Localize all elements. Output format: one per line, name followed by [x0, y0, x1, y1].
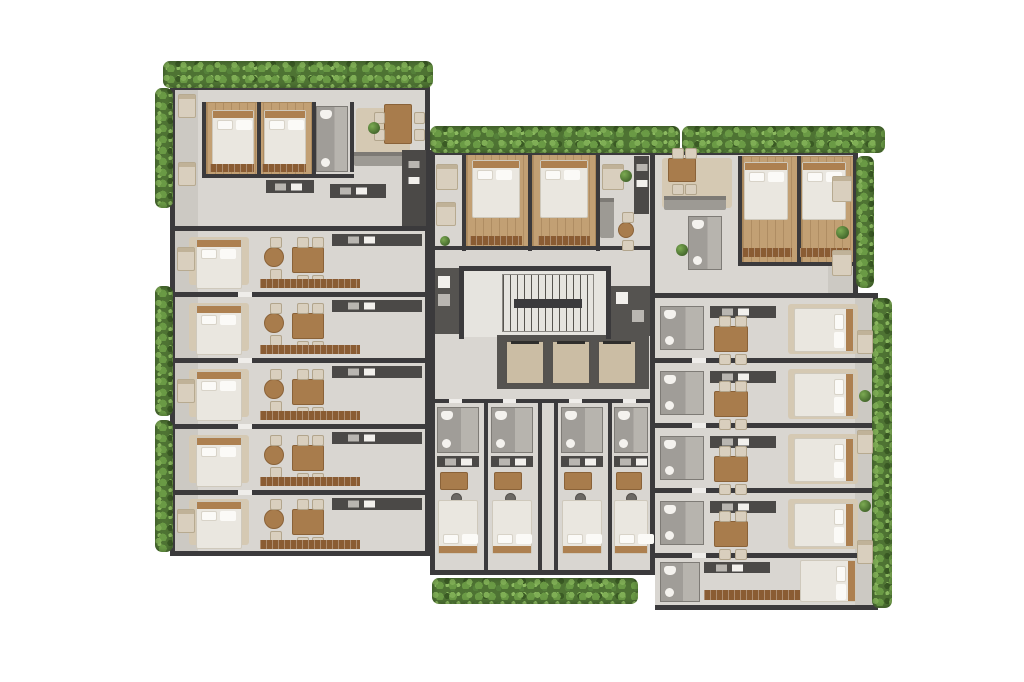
dining-table — [292, 247, 324, 273]
elevator-1 — [505, 340, 545, 385]
bathroom — [660, 562, 700, 602]
bathroom — [437, 407, 479, 453]
bathroom — [491, 407, 533, 453]
sofa — [664, 196, 726, 210]
lounge-chair — [177, 509, 195, 533]
wardrobe — [742, 248, 792, 257]
kitchen-counter — [332, 366, 422, 378]
bed — [438, 500, 478, 554]
door-gap — [692, 358, 706, 363]
bed — [264, 110, 306, 166]
washer — [438, 276, 450, 288]
wall — [462, 153, 466, 251]
bathroom — [614, 407, 648, 453]
bed — [540, 160, 588, 218]
kitchen-counter — [614, 456, 648, 467]
wardrobe — [470, 236, 522, 245]
dining-table — [714, 521, 748, 547]
bathroom — [660, 306, 704, 350]
wall — [430, 150, 435, 575]
desk — [440, 472, 468, 490]
kitchen-island — [330, 184, 386, 198]
wall — [484, 403, 488, 570]
hedge-top-center — [430, 126, 680, 153]
wardrobe — [704, 590, 804, 600]
bathroom — [660, 371, 704, 415]
bed — [196, 437, 242, 487]
hedge-left-upper — [155, 88, 173, 208]
stair-landing — [514, 299, 582, 308]
wall — [538, 403, 542, 570]
wall — [202, 174, 354, 178]
wall — [655, 553, 873, 558]
dining-table — [384, 104, 412, 144]
hedge-right-upper — [856, 156, 874, 288]
door-gap — [692, 488, 706, 493]
side-table — [264, 445, 284, 465]
lounge-chair — [832, 176, 852, 202]
door-gap — [569, 399, 582, 403]
dining-table — [292, 313, 324, 339]
bed — [196, 501, 242, 549]
side-table — [264, 379, 284, 399]
hedge-right-lower — [872, 298, 892, 608]
side-table — [264, 509, 284, 529]
wall — [655, 488, 873, 493]
wall — [202, 102, 206, 176]
bed — [794, 308, 854, 352]
wardrobe — [260, 279, 360, 288]
bathroom — [660, 436, 704, 480]
bed — [492, 500, 532, 554]
washer — [632, 310, 644, 322]
wall — [432, 399, 653, 403]
plant — [676, 244, 688, 256]
wall — [655, 423, 873, 428]
bed — [794, 503, 854, 547]
plant — [859, 500, 871, 512]
door-gap — [692, 553, 706, 558]
wardrobe — [260, 540, 360, 549]
bed — [744, 162, 788, 220]
wardrobe — [260, 411, 360, 420]
desk — [616, 472, 642, 490]
bed — [212, 110, 254, 166]
wardrobe — [260, 477, 360, 486]
plant — [836, 226, 849, 239]
bed — [196, 371, 242, 421]
side-table — [264, 247, 284, 267]
washer — [438, 294, 450, 306]
door-gap — [503, 399, 516, 403]
bathroom — [561, 407, 603, 453]
door-gap — [238, 424, 252, 429]
wall — [257, 102, 261, 176]
wall — [606, 266, 611, 339]
wardrobe — [210, 164, 254, 172]
kitchen-counter — [634, 156, 649, 214]
dining-table — [292, 445, 324, 471]
kitchen-counter — [561, 456, 603, 467]
dining-table — [714, 326, 748, 352]
lounge-chair — [857, 430, 873, 454]
desk — [494, 472, 522, 490]
kitchen-counter — [437, 456, 479, 467]
dining-table — [292, 509, 324, 535]
dining-table — [668, 158, 696, 182]
wardrobe — [538, 236, 590, 245]
lounge-chair — [832, 250, 852, 276]
bed — [794, 438, 854, 482]
elevator-3 — [597, 340, 637, 385]
bed — [800, 560, 856, 602]
door-gap — [623, 399, 636, 403]
elevator-2 — [551, 340, 591, 385]
bathroom — [688, 216, 722, 270]
hedge-left-lower — [155, 420, 173, 552]
hedge-bottom-center — [432, 578, 638, 604]
kitchen-counter — [266, 180, 314, 193]
lounge-chair — [436, 202, 456, 226]
plant — [859, 390, 871, 402]
plant — [440, 236, 450, 246]
lounge-chair — [178, 94, 196, 118]
kitchen-counter — [332, 234, 422, 246]
kitchen-counter — [332, 300, 422, 312]
bed — [196, 305, 242, 355]
floor-plan-canvas — [0, 0, 1024, 682]
door-gap — [692, 423, 706, 428]
bathroom — [316, 106, 348, 172]
bed — [562, 500, 602, 554]
plant — [368, 122, 380, 134]
wall — [175, 292, 425, 297]
wall — [175, 358, 425, 363]
kitchen-counter — [332, 432, 422, 444]
door-gap — [449, 399, 462, 403]
bed — [614, 500, 648, 554]
hedge-top-left — [163, 61, 433, 88]
door-gap — [238, 292, 252, 297]
lounge-chair — [436, 164, 458, 190]
dining-table — [714, 456, 748, 482]
wall — [459, 266, 464, 339]
wall — [170, 551, 430, 556]
wall — [554, 403, 558, 570]
lounge-chair — [177, 247, 195, 271]
wardrobe — [260, 345, 360, 354]
door-gap — [238, 490, 252, 495]
lounge-chair — [177, 379, 195, 403]
bathroom — [660, 501, 704, 545]
washer — [616, 292, 628, 304]
wall — [655, 605, 878, 610]
hedge-left-mid — [155, 286, 173, 416]
wall — [430, 570, 655, 575]
bed — [794, 373, 854, 417]
side-table — [264, 313, 284, 333]
bed — [196, 239, 242, 289]
bed — [472, 160, 520, 218]
wall — [655, 293, 878, 298]
lounge-chair — [178, 162, 196, 186]
kitchen-counter — [491, 456, 533, 467]
wall — [175, 226, 425, 231]
plant — [620, 170, 632, 182]
door-gap — [238, 358, 252, 363]
wall — [608, 403, 612, 570]
desk — [564, 472, 592, 490]
lounge-chair — [857, 330, 873, 354]
wardrobe — [262, 164, 306, 172]
wall — [175, 424, 425, 429]
wall — [655, 358, 873, 363]
sofa — [600, 198, 614, 238]
lounge-chair — [857, 540, 873, 564]
kitchen-counter — [704, 562, 770, 573]
wall — [528, 153, 532, 251]
kitchen-counter — [402, 150, 426, 226]
kitchen-counter — [332, 498, 422, 510]
dining-table — [292, 379, 324, 405]
hedge-top-right — [682, 126, 885, 153]
wall — [175, 490, 425, 495]
wall — [459, 266, 611, 271]
dining-table — [714, 391, 748, 417]
side-table — [618, 222, 634, 238]
